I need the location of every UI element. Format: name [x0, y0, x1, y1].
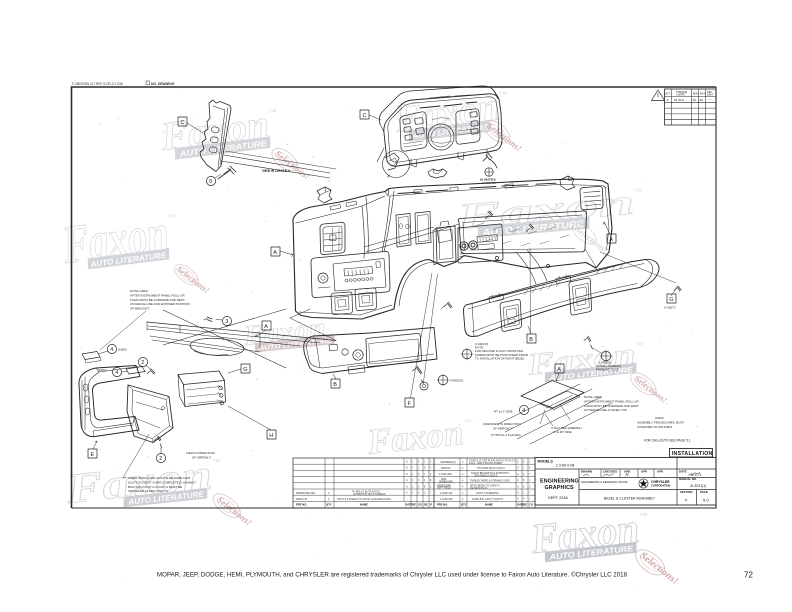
svg-text:A: A [667, 98, 669, 102]
svg-text:S/NUT 6 & SHEETS TO ANTIC QUA: S/NUT 6 & SHEETS TO ANTIC QUALIFIED SCRS [337, 498, 391, 501]
svg-text:TO INSTALLATION OF RIGHT BEZEL: TO INSTALLATION OF RIGHT BEZEL [475, 356, 525, 360]
svg-text:(1962)VIEW IN DIRECTION: (1962)VIEW IN DIRECTION [483, 422, 521, 426]
svg-text:NAME: NAME [360, 503, 368, 507]
svg-text:B: B [333, 382, 337, 388]
svg-text:1-SCR=250: 1-SCR=250 [439, 473, 452, 476]
svg-text:MIN: MIN [693, 92, 698, 96]
svg-text:TM: TM [464, 418, 471, 424]
svg-text:29: 29 [700, 98, 704, 102]
svg-text:(TYPICAL 2 PLACES): (TYPICAL 2 PLACES) [491, 433, 521, 437]
svg-text:DE: DE [424, 503, 428, 507]
svg-text:VIEW IN DIRECTION: VIEW IN DIRECTION [186, 451, 215, 455]
svg-text:72: 72 [744, 571, 753, 580]
svg-text:LIMITS: LIMITS [677, 93, 686, 97]
svg-text:2.3 M2-0-08: 2.3 M2-0-08 [556, 464, 574, 468]
svg-text:A: A [264, 324, 268, 330]
svg-text:TM: TM [168, 213, 176, 220]
svg-text:DEPT REQD: DEPT REQD [437, 487, 451, 490]
svg-text:2: 2 [141, 360, 144, 366]
svg-text:FOAM MUST BE FORWARD AND REST: FOAM MUST BE FORWARD AND REST [130, 298, 185, 302]
svg-text:SCRW B B. C/PLT 'S ASSYS: SCRW B B. C/PLT 'S ASSYS [472, 498, 503, 501]
svg-text:MAX: MAX [700, 92, 706, 96]
svg-text:CONFORM TO IPP-F3821: CONFORM TO IPP-F3821 [637, 425, 673, 429]
svg-text:MODELS: MODELS [538, 460, 554, 464]
svg-text:CHECKED: CHECKED [603, 469, 617, 473]
svg-text:BEZEL & CLUSTER ASSEMBLY: BEZEL & CLUSTER ASSEMBLY [604, 497, 656, 501]
svg-text:(1962): (1962) [655, 416, 664, 420]
svg-text:TM: TM [499, 90, 507, 97]
svg-text:F-2803GRA-117 REF 8-CR-3.7-24: F-2803GRA-117 REF 8-CR-3.7-246 [72, 82, 123, 86]
svg-text:FOR CALLOUTS SEE PAGE 5.1: FOR CALLOUTS SEE PAGE 5.1 [644, 439, 691, 443]
svg-text:RE: RE [412, 503, 416, 507]
svg-text:GROMMET(A): GROMMET(A) [440, 461, 456, 464]
svg-text:1-SCR=131: 1-SCR=131 [440, 492, 453, 495]
svg-text:LET: LET [665, 92, 670, 96]
svg-text:TM: TM [639, 512, 647, 519]
svg-text:NO. DRAWING: NO. DRAWING [151, 82, 175, 86]
svg-text:SPEEDOMR: SPEEDOMR [439, 480, 453, 483]
svg-text:SPEEDOME ASE.: SPEEDOME ASE. [296, 492, 316, 495]
svg-text:1-SCR=293: 1-SCR=293 [440, 498, 453, 501]
svg-text:MANUAL NO.: MANUAL NO. [679, 477, 697, 481]
svg-text:(4 REQ'D): (4 REQ'D) [450, 379, 463, 383]
svg-text:C: C [181, 120, 185, 126]
svg-text:A ALC. SMS 2 FRONT ASSBLY: A ALC. SMS 2 FRONT ASSBLY [469, 462, 503, 465]
svg-text:CO: CO [418, 503, 422, 507]
svg-text:G: G [406, 468, 408, 470]
svg-text:PRE NO.: PRE NO. [296, 503, 307, 507]
svg-text:3500/1=31: 3500/1=31 [296, 498, 308, 501]
svg-text:INSTALLATION: INSTALLATION [672, 451, 713, 457]
svg-text:SPE PANELS ASSCS: SPE PANELS ASSCS [474, 474, 498, 477]
svg-text:LIMIT: LIMIT [707, 93, 714, 96]
svg-text:NOTE-(1962): NOTE-(1962) [130, 289, 148, 293]
svg-text:A: A [273, 250, 277, 256]
svg-text:A: A [609, 237, 613, 243]
svg-text:G: G [517, 486, 519, 488]
svg-text:NOTE-(1962): NOTE-(1962) [584, 395, 602, 399]
svg-text:PAGE: PAGE [700, 490, 708, 494]
svg-text:PRE NO.: PRE NO. [437, 503, 448, 507]
svg-text:4: 4 [115, 370, 118, 376]
svg-text:5.0: 5.0 [703, 497, 709, 502]
svg-text:24 IN.#: 24 IN.# [674, 98, 684, 102]
svg-text:6094230: 6094230 [441, 467, 451, 470]
svg-text:APP.: APP. [641, 469, 648, 473]
svg-text:THREAD TAPPG & FORMING SCRS: THREAD TAPPG & FORMING SCRS [470, 479, 510, 482]
svg-text:OF ARROW Z: OF ARROW Z [192, 456, 211, 460]
svg-text:SLOTS IN C/OUT E ARE COMPLETEL: SLOTS IN C/OUT E ARE COMPLETELY AGAINST [128, 480, 196, 484]
svg-text:P: P [430, 503, 432, 507]
svg-text:TM: TM [635, 188, 643, 195]
svg-text:AFTER INSTRUMENT PANEL ROLL-UP: AFTER INSTRUMENT PANEL ROLL-UP, [130, 293, 185, 297]
svg-text:CHRYSLER: CHRYSLER [651, 480, 670, 484]
svg-text:41-8741(1): 41-8741(1) [690, 484, 706, 488]
svg-text:RE SEND P.A.D.: RE SEND P.A.D. [470, 487, 488, 490]
svg-text:E: E [91, 452, 95, 458]
svg-text:A: A [557, 367, 561, 373]
svg-text:G 90273: G 90273 [664, 306, 676, 310]
svg-text:OF BRACKET: OF BRACKET [130, 307, 149, 311]
svg-text:G: G [406, 462, 408, 464]
svg-text:2: 2 [159, 456, 162, 462]
svg-text:CO: CO [529, 503, 533, 507]
svg-text:INSTALLED AFTER C/OUT H: INSTALLED AFTER C/OUT H [128, 489, 168, 493]
svg-text:OF ARROW 'Y': OF ARROW 'Y' [493, 427, 514, 431]
svg-text:G: G [243, 367, 247, 373]
svg-text:RE: RE [523, 503, 527, 507]
svg-text:G: G [517, 462, 519, 464]
svg-text:WHEN INSTALLING C/OUT E BE SUR: WHEN INSTALLING C/OUT E BE SURE THAT [128, 476, 191, 480]
svg-text:ON FENCE LINE & PANEL TOP: ON FENCE LINE & PANEL TOP [584, 408, 627, 412]
svg-text:O: O [406, 474, 408, 476]
svg-text:DEPT 2246: DEPT 2246 [548, 496, 568, 500]
svg-text:G: G [406, 480, 408, 482]
svg-text:—: — [708, 98, 711, 102]
svg-text:(1962): (1962) [118, 348, 127, 352]
svg-text:QTY: QTY [461, 503, 467, 507]
svg-text:5: 5 [209, 179, 212, 185]
svg-text:ENGINEERING: ENGINEERING [540, 479, 579, 485]
svg-text:TM: TM [212, 458, 220, 465]
svg-text:QTY: QTY [326, 503, 332, 507]
svg-text:SECTION: SECTION [680, 490, 692, 494]
svg-text:H: H [269, 433, 273, 439]
svg-text:VIEW IN CIRCLE X: VIEW IN CIRCLE X [262, 169, 291, 173]
svg-text:G: G [669, 297, 673, 303]
svg-text:G: G [406, 486, 408, 488]
svg-text:TM: TM [636, 341, 643, 347]
svg-text:TP=SCRS MNTG AUXCO: TP=SCRS MNTG AUXCO [477, 467, 505, 470]
svg-text:ENGINEERING & RESEARCH OFFICE: ENGINEERING & RESEARCH OFFICE [582, 480, 628, 484]
svg-text:APP.: APP. [624, 469, 631, 473]
svg-text:G: G [517, 474, 519, 476]
svg-text:ON FENCE LINE AND EXPOSED PORT: ON FENCE LINE AND EXPOSED PORTION [130, 302, 190, 306]
svg-text:G: G [517, 468, 519, 470]
svg-text:FROM KIT TO LT: FROM KIT TO LT [596, 368, 619, 372]
svg-text:4: 4 [522, 408, 525, 414]
svg-text:12-8-71: 12-8-71 [690, 473, 702, 477]
svg-text:FOAM MUST BE FORWARD AND REST: FOAM MUST BE FORWARD AND REST [584, 404, 639, 408]
svg-text:MOPAR, JEEP, DODGE, HEMI, PLYM: MOPAR, JEEP, DODGE, HEMI, PLYMOUTH, and … [157, 572, 628, 579]
svg-text:B: B [529, 337, 533, 343]
svg-text:RT & LT SIDE: RT & LT SIDE [494, 410, 513, 414]
svg-text:LT & RT SIDE: LT & RT SIDE [553, 430, 572, 434]
svg-text:AFTER INSTRUMENT PANEL ROLL-UP: AFTER INSTRUMENT PANEL ROLL-UP, [584, 399, 639, 403]
svg-text:APP.: APP. [657, 469, 664, 473]
svg-text:CORPORATION: CORPORATION [651, 484, 670, 488]
svg-text:NAME: NAME [485, 503, 493, 507]
svg-text:ASSEMBLY PROCEDURES MUST: ASSEMBLY PROCEDURES MUST [637, 420, 684, 424]
svg-text:TM: TM [269, 108, 277, 115]
svg-text:G: G [517, 480, 519, 482]
svg-text:BOLTS IN C/OUT G C/OUT G MUST: BOLTS IN C/OUT G C/OUT G MUST BE [128, 485, 182, 489]
svg-text:3: 3 [225, 319, 228, 325]
svg-text:G: G [517, 499, 519, 501]
svg-text:C/PST J SCREWING: C/PST J SCREWING [476, 492, 499, 495]
svg-text:4: 4 [110, 347, 113, 353]
svg-text:DRAWN: DRAWN [581, 469, 592, 473]
svg-text:GRAPHICS: GRAPHICS [545, 485, 575, 491]
svg-text:C: C [363, 113, 367, 119]
svg-text:19: 19 [693, 98, 697, 102]
svg-text:ANTIROTOR NUTS ASSEBLS: ANTIROTOR NUTS ASSEBLS [353, 493, 386, 496]
svg-text:DATE: DATE [679, 469, 687, 473]
